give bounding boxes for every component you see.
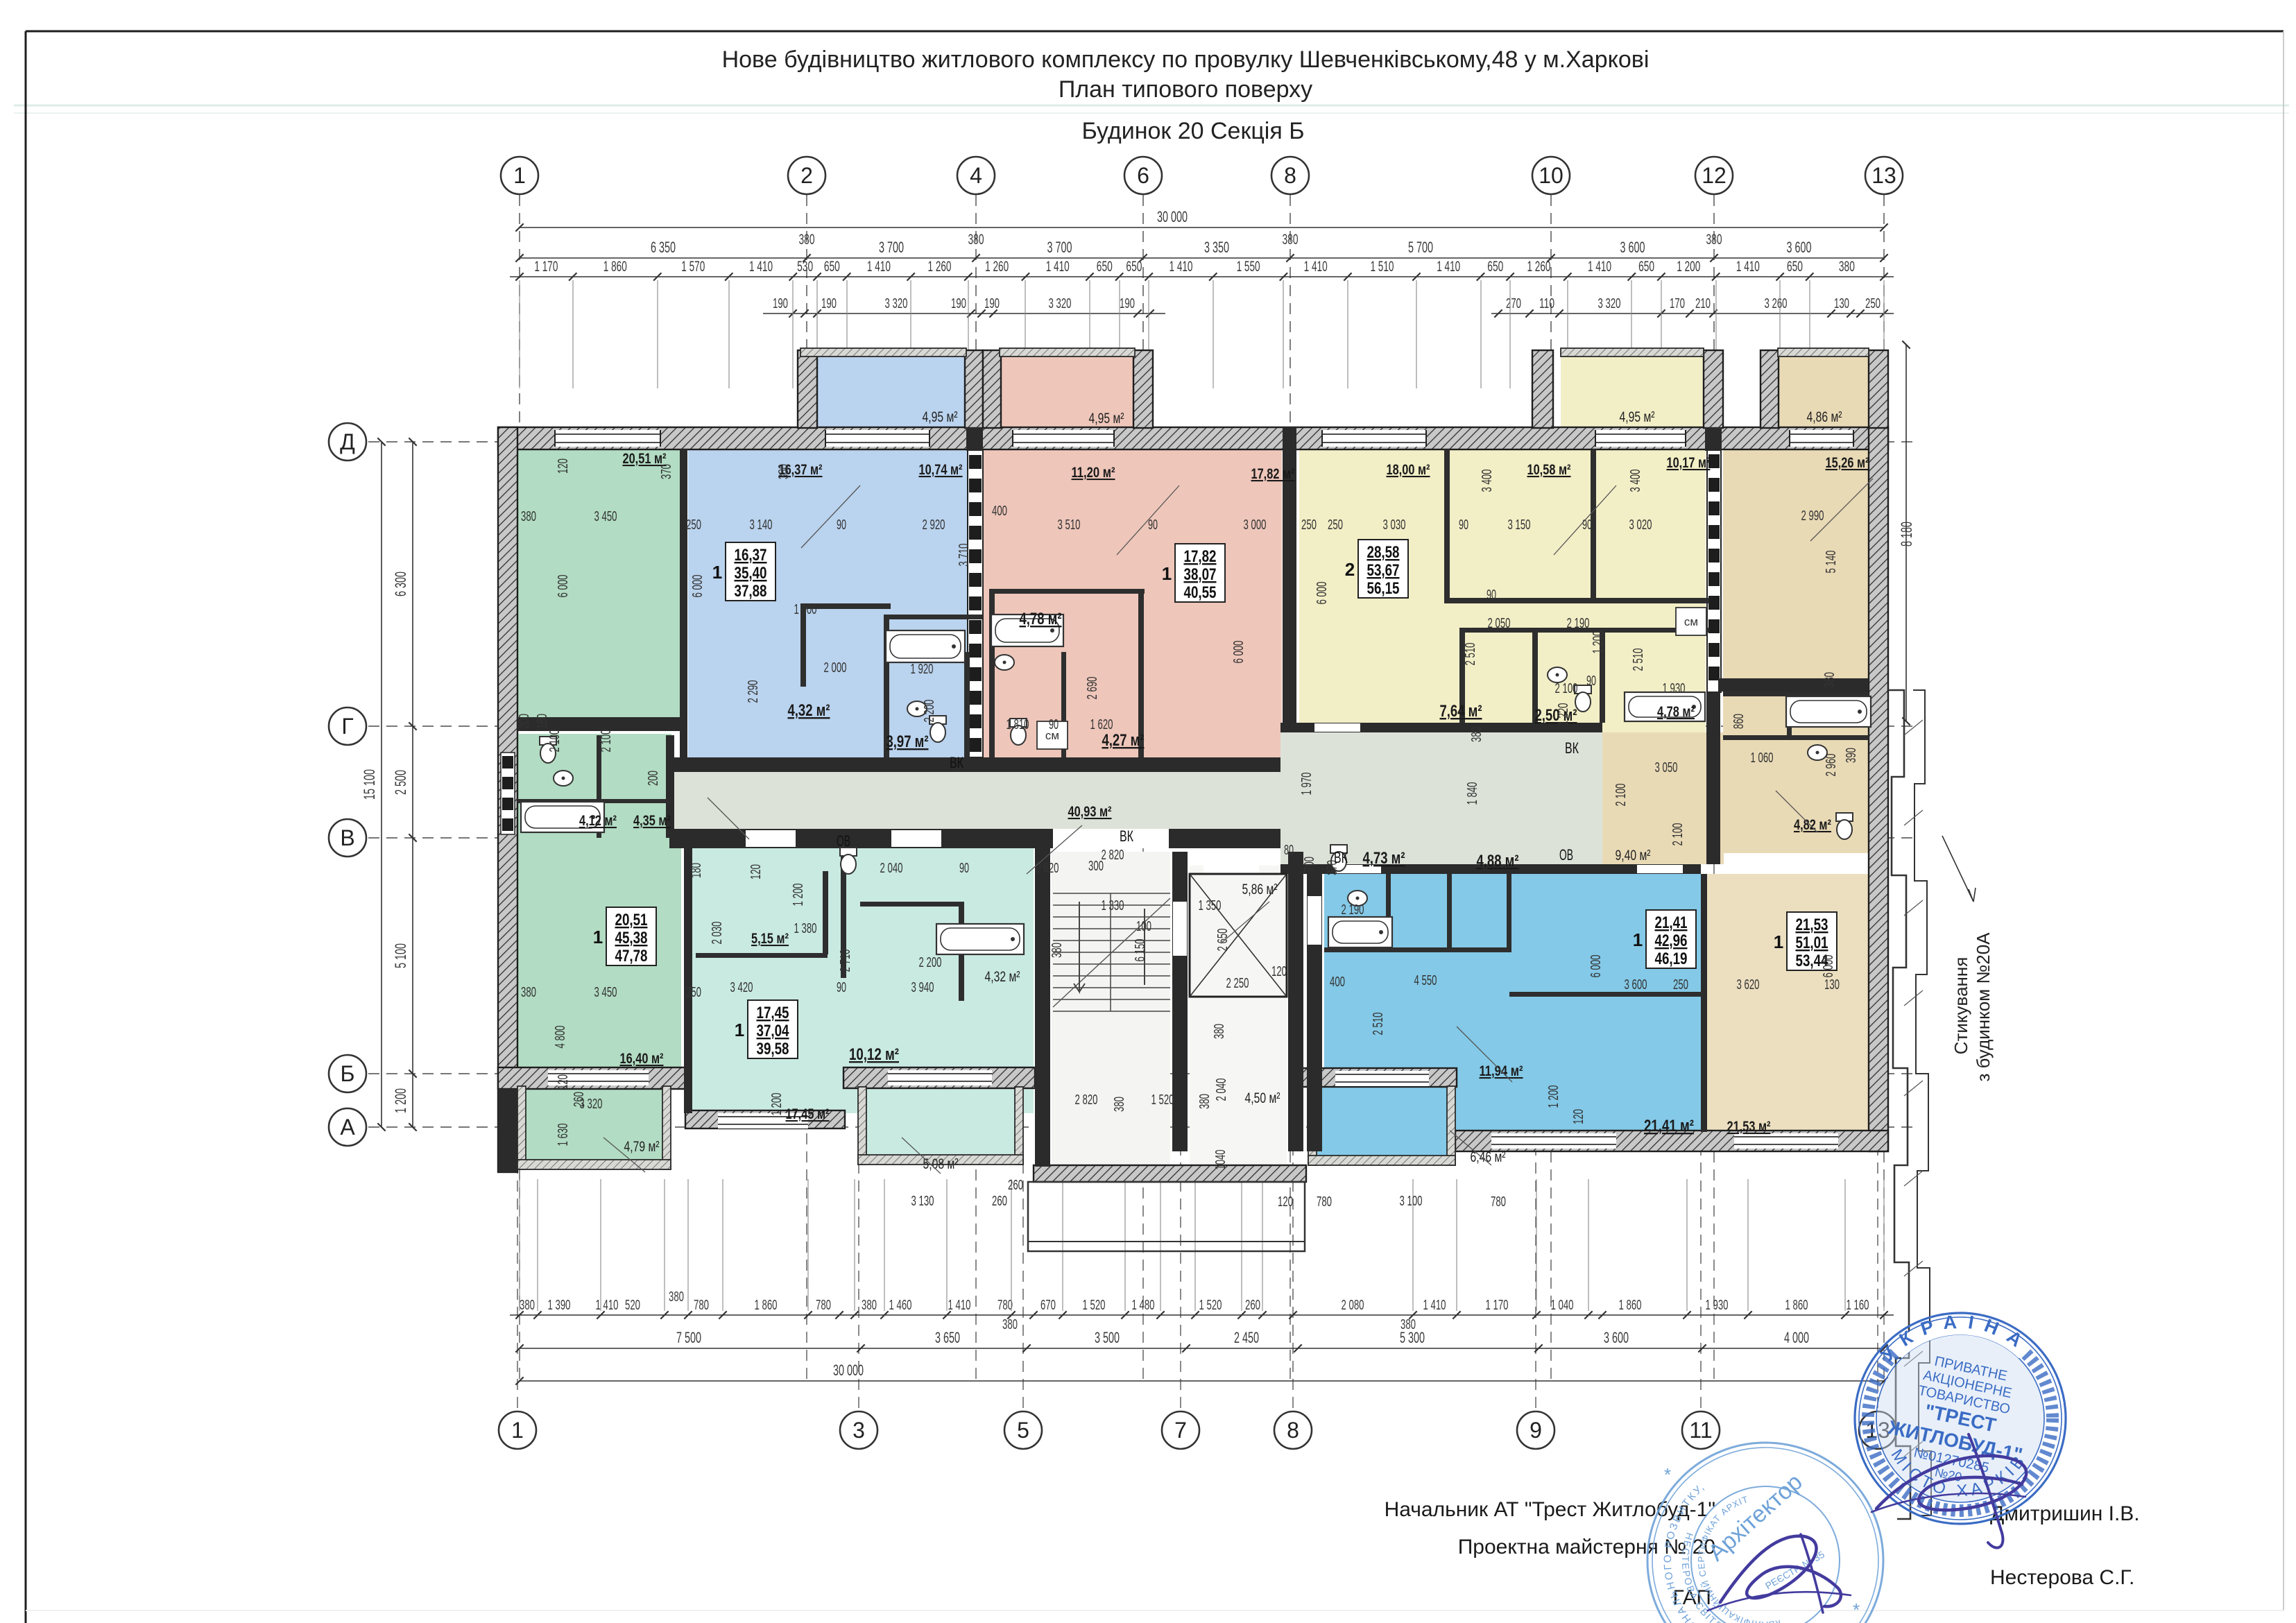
svg-text:650: 650 [1487,259,1503,275]
svg-text:21,41 м²: 21,41 м² [1644,1117,1694,1135]
svg-text:380: 380 [521,509,536,524]
svg-text:120: 120 [1571,1109,1586,1124]
svg-text:3 510: 3 510 [1058,517,1081,533]
svg-text:90: 90 [837,980,846,995]
svg-text:2 080: 2 080 [1342,1298,1364,1313]
svg-text:190: 190 [1120,296,1135,311]
svg-text:3 320: 3 320 [885,296,908,311]
svg-text:110: 110 [1539,296,1554,311]
svg-text:1: 1 [735,1020,744,1040]
svg-text:1 480: 1 480 [1132,1298,1155,1313]
svg-text:1 410: 1 410 [1046,259,1070,275]
svg-text:1 350: 1 350 [1199,898,1222,913]
svg-text:4,50 м²: 4,50 м² [1245,1090,1280,1106]
svg-text:780: 780 [1317,1194,1332,1210]
svg-text:17,45: 17,45 [757,1004,789,1022]
svg-text:380: 380 [669,1289,684,1305]
svg-text:1 520: 1 520 [1151,1092,1174,1108]
svg-text:380: 380 [776,464,791,479]
svg-text:20,51: 20,51 [615,911,648,929]
svg-text:7,64 м²: 7,64 м² [1440,702,1482,721]
svg-text:2 030: 2 030 [710,922,725,945]
svg-text:21,53: 21,53 [1796,916,1828,934]
svg-text:4,86 м²: 4,86 м² [1807,409,1842,425]
svg-text:4,35 м²: 4,35 м² [633,813,671,829]
svg-text:780: 780 [694,1298,709,1313]
svg-text:3 600: 3 600 [1625,977,1647,993]
svg-text:4 800: 4 800 [553,1026,568,1049]
svg-text:380: 380 [1283,232,1299,248]
svg-text:3 100: 3 100 [1400,1194,1423,1209]
svg-text:1 200: 1 200 [1546,1085,1561,1108]
svg-text:16,40 м²: 16,40 м² [620,1051,664,1067]
svg-text:План типового поверху: План типового поверху [1059,76,1312,103]
svg-text:90: 90 [1459,517,1468,533]
svg-text:5,15 м²: 5,15 м² [751,931,789,947]
svg-text:190: 190 [984,296,1000,311]
svg-text:650: 650 [1097,259,1113,275]
svg-text:3 320: 3 320 [1598,296,1621,311]
svg-text:3 710: 3 710 [957,544,972,567]
svg-text:Нове будівництво житлового ком: Нове будівництво житлового комплексу по … [722,46,1650,73]
svg-text:1 840: 1 840 [1465,782,1480,805]
svg-text:4,78 м²: 4,78 м² [1020,610,1062,628]
svg-text:3 400: 3 400 [1480,470,1495,492]
svg-text:380: 380 [1822,672,1837,687]
svg-text:3 620: 3 620 [1737,977,1760,993]
svg-text:2 100: 2 100 [599,730,614,753]
svg-text:1 170: 1 170 [534,259,558,275]
svg-text:3 000: 3 000 [1244,517,1267,533]
svg-text:35,40: 35,40 [735,564,767,583]
svg-text:ВК: ВК [1120,827,1133,845]
svg-text:18,00 м²: 18,00 м² [1387,462,1430,478]
svg-text:51,01: 51,01 [1796,934,1828,952]
svg-text:2 100: 2 100 [1555,681,1578,696]
svg-text:4 550: 4 550 [1414,973,1437,988]
svg-text:4 000: 4 000 [1784,1329,1809,1346]
svg-text:21,53 м²: 21,53 м² [1727,1119,1771,1135]
svg-text:5,08 м²: 5,08 м² [923,1156,959,1172]
svg-text:2 040: 2 040 [880,861,903,876]
svg-text:3 500: 3 500 [1095,1329,1120,1346]
svg-text:210: 210 [1695,296,1711,311]
svg-text:13: 13 [1871,163,1896,188]
svg-text:190: 190 [951,296,966,311]
svg-text:250: 250 [1673,977,1688,993]
svg-text:270: 270 [1506,296,1521,311]
svg-text:1 930: 1 930 [1663,681,1686,696]
svg-text:1 410: 1 410 [1304,259,1328,275]
svg-text:4,78 м²: 4,78 м² [1657,704,1695,720]
svg-text:380: 380 [799,232,815,248]
svg-text:380: 380 [521,985,536,1000]
svg-text:780: 780 [816,1298,831,1313]
svg-text:4: 4 [970,163,982,188]
svg-text:Нестерова С.Г.: Нестерова С.Г. [1990,1566,2134,1589]
svg-text:120: 120 [1271,964,1287,979]
svg-text:15 100: 15 100 [361,769,378,800]
svg-text:1 520: 1 520 [1199,1298,1222,1313]
svg-text:120: 120 [1278,1194,1293,1210]
svg-text:2 050: 2 050 [1488,616,1511,631]
svg-text:260: 260 [992,1194,1007,1209]
svg-text:3 450: 3 450 [594,509,617,524]
svg-text:4,88 м²: 4,88 м² [1477,852,1519,870]
svg-text:260: 260 [1245,1298,1260,1313]
svg-text:3 130: 3 130 [911,1194,934,1209]
svg-text:90: 90 [1049,717,1059,732]
svg-text:ОВ: ОВ [837,832,850,850]
svg-text:6 000: 6 000 [1821,955,1836,978]
svg-text:1 410: 1 410 [1588,259,1611,275]
svg-text:780: 780 [997,1298,1013,1313]
svg-text:Б: Б [341,1061,355,1086]
svg-text:4,82 м²: 4,82 м² [1794,817,1831,833]
svg-text:3 260: 3 260 [1765,296,1788,311]
svg-text:5 700: 5 700 [1408,239,1433,256]
svg-text:Будинок 20 Секція Б: Будинок 20 Секція Б [1081,118,1304,144]
svg-text:170: 170 [1670,296,1685,311]
svg-text:2 200: 2 200 [919,955,942,970]
svg-text:260: 260 [1008,1178,1023,1193]
svg-text:2 190: 2 190 [1567,616,1590,631]
svg-text:Г: Г [341,714,353,739]
svg-text:47,78: 47,78 [615,947,648,965]
svg-text:21,41: 21,41 [1655,913,1688,932]
svg-text:380: 380 [1212,1024,1227,1039]
svg-text:250: 250 [1865,296,1881,311]
svg-text:670: 670 [1040,1298,1056,1313]
svg-text:1 860: 1 860 [1785,1298,1808,1313]
svg-text:2 100: 2 100 [1670,823,1686,846]
svg-text:380: 380 [1002,1317,1018,1332]
svg-text:А: А [340,1115,355,1140]
svg-text:1: 1 [1633,929,1643,950]
svg-text:260: 260 [572,1092,587,1107]
svg-text:3 600: 3 600 [1620,239,1645,256]
svg-text:17,82: 17,82 [1184,547,1217,566]
svg-text:180: 180 [689,863,704,878]
svg-text:10,17 м²: 10,17 м² [1667,455,1711,471]
svg-text:3 600: 3 600 [1787,239,1812,256]
svg-text:3 450: 3 450 [594,985,617,1000]
svg-text:8: 8 [1287,1418,1299,1443]
svg-text:380: 380 [1112,1097,1127,1112]
svg-text:3 400: 3 400 [1628,470,1643,492]
svg-text:2 290: 2 290 [746,680,761,703]
svg-text:1 170: 1 170 [1486,1298,1509,1313]
svg-text:8: 8 [1284,163,1296,188]
svg-text:200: 200 [517,714,532,729]
svg-text:200: 200 [646,771,661,786]
svg-text:1 410: 1 410 [749,259,773,275]
svg-text:1 200: 1 200 [769,1093,785,1116]
svg-text:3 050: 3 050 [1655,760,1678,775]
svg-text:250: 250 [1328,517,1343,533]
svg-text:130: 130 [1834,296,1849,311]
svg-text:2 250: 2 250 [1226,976,1249,991]
svg-text:2 710: 2 710 [838,950,853,972]
svg-text:1: 1 [1774,931,1783,952]
svg-text:380: 380 [862,1298,877,1313]
svg-text:1 520: 1 520 [1083,1298,1106,1313]
svg-text:56,15: 56,15 [1367,579,1400,598]
svg-text:380: 380 [1050,943,1065,958]
svg-text:з будинком №20А: з будинком №20А [1973,932,1994,1082]
svg-text:1 200: 1 200 [791,884,806,907]
svg-text:8 180: 8 180 [1898,522,1915,547]
svg-text:11,20 м²: 11,20 м² [1072,465,1115,481]
svg-text:1 930: 1 930 [1706,1298,1729,1313]
svg-text:1 550: 1 550 [1237,259,1260,275]
svg-text:5 140: 5 140 [1824,551,1839,574]
svg-text:3,97 м²: 3,97 м² [886,732,929,751]
svg-text:400: 400 [1330,974,1345,990]
svg-text:120: 120 [556,1074,571,1090]
svg-text:90: 90 [959,861,969,876]
svg-text:2 820: 2 820 [1102,848,1124,863]
svg-text:2 510: 2 510 [1631,649,1646,671]
svg-text:ВК: ВК [1565,739,1579,757]
svg-text:1: 1 [511,1418,524,1443]
svg-text:53,67: 53,67 [1367,561,1400,580]
svg-text:Проектна майстерня № 20: Проектна майстерня № 20 [1458,1536,1715,1558]
svg-text:520: 520 [625,1298,640,1313]
svg-text:10: 10 [1539,163,1563,188]
svg-text:17,45 м²: 17,45 м² [786,1106,830,1122]
svg-text:6 350: 6 350 [651,239,676,256]
svg-text:см: см [1684,615,1698,628]
svg-text:3 650: 3 650 [935,1329,960,1346]
svg-text:3 700: 3 700 [879,239,904,256]
svg-text:120: 120 [556,458,571,474]
svg-text:40,55: 40,55 [1184,583,1217,602]
svg-text:6 300: 6 300 [392,572,409,596]
svg-text:6 000: 6 000 [1231,641,1246,664]
svg-text:380: 380 [1706,232,1722,248]
svg-text:*: * [1664,1464,1671,1485]
svg-text:1 920: 1 920 [911,662,934,677]
svg-text:37,04: 37,04 [757,1022,790,1040]
svg-text:120: 120 [748,864,764,879]
svg-text:4,79 м²: 4,79 м² [624,1139,660,1155]
svg-text:3 020: 3 020 [1629,517,1652,533]
svg-text:10,58 м²: 10,58 м² [1527,462,1571,478]
svg-text:1 260: 1 260 [985,259,1009,275]
svg-text:650: 650 [1638,259,1654,275]
svg-text:80: 80 [1284,843,1294,858]
svg-text:2 920: 2 920 [923,517,945,533]
svg-text:1 410: 1 410 [596,1298,619,1313]
svg-text:6 000: 6 000 [556,575,571,598]
svg-text:860: 860 [1731,714,1747,729]
svg-text:700: 700 [1302,857,1317,872]
svg-text:10,12 м²: 10,12 м² [849,1045,899,1064]
svg-text:5 100: 5 100 [392,943,409,968]
svg-text:1 570: 1 570 [681,259,705,275]
svg-text:1 060: 1 060 [1751,750,1774,766]
svg-text:2 040: 2 040 [1214,1079,1229,1101]
svg-text:9: 9 [1530,1418,1542,1443]
svg-text:4,32 м²: 4,32 м² [985,969,1020,985]
svg-text:2 690: 2 690 [1085,677,1100,700]
svg-text:390: 390 [1844,748,1859,763]
svg-text:1: 1 [513,163,526,188]
svg-text:100: 100 [1136,919,1151,934]
svg-text:4,73 м²: 4,73 м² [1363,849,1405,868]
svg-text:Стикування: Стикування [1951,957,1971,1055]
svg-text:4,12 м²: 4,12 м² [579,813,617,829]
svg-text:4,27 м²: 4,27 м² [1102,731,1145,750]
svg-text:6: 6 [1137,163,1149,188]
svg-text:1 410: 1 410 [1437,259,1460,275]
svg-text:380: 380 [968,232,984,248]
svg-text:1 620: 1 620 [1090,717,1113,732]
svg-text:1 380: 1 380 [794,921,817,936]
svg-text:2: 2 [1345,559,1355,580]
svg-text:190: 190 [773,296,788,311]
svg-text:7 500: 7 500 [676,1329,701,1346]
svg-text:370: 370 [659,464,674,479]
svg-text:90: 90 [1586,673,1596,689]
svg-text:1 040: 1 040 [1551,1298,1574,1313]
svg-text:380: 380 [520,1298,535,1313]
svg-text:1040: 1040 [1213,1150,1228,1170]
svg-text:780: 780 [1491,1194,1506,1210]
svg-text:3 150: 3 150 [1508,517,1531,533]
svg-text:45,38: 45,38 [615,929,648,947]
svg-text:2 960: 2 960 [1824,754,1839,777]
svg-text:1 510: 1 510 [1370,259,1394,275]
svg-text:1 410: 1 410 [948,1298,971,1313]
svg-text:1 860: 1 860 [1619,1298,1642,1313]
svg-text:2 510: 2 510 [1463,643,1478,666]
svg-text:650: 650 [1787,259,1803,275]
svg-text:2 100: 2 100 [1613,784,1629,807]
svg-text:Начальник АТ "Трест Житлобуд-1: Начальник АТ "Трест Житлобуд-1" [1385,1498,1715,1521]
svg-text:90: 90 [1582,517,1592,533]
svg-text:2 100: 2 100 [547,730,563,753]
svg-text:28,58: 28,58 [1367,543,1400,562]
svg-text:180: 180 [535,714,550,729]
svg-text:6 150: 6 150 [1133,939,1148,962]
svg-text:2 650: 2 650 [1215,929,1231,952]
svg-text:ВК: ВК [950,754,963,771]
svg-text:1 260: 1 260 [1527,259,1550,275]
svg-text:650: 650 [1126,259,1142,275]
svg-text:1 410: 1 410 [867,259,891,275]
svg-text:2 200: 2 200 [922,700,937,723]
svg-text:3 420: 3 420 [730,980,753,995]
svg-text:4,95 м²: 4,95 м² [1089,411,1124,427]
svg-text:380: 380 [1839,259,1855,275]
svg-text:17,82 м²: 17,82 м² [1251,466,1295,482]
svg-text:12: 12 [1702,163,1727,188]
svg-text:1 410: 1 410 [1423,1298,1446,1313]
svg-text:11: 11 [1689,1418,1712,1443]
svg-text:4,32 м²: 4,32 м² [788,701,830,720]
svg-text:650: 650 [824,259,840,275]
svg-text:15,26 м²: 15,26 м² [1826,455,1869,471]
svg-text:1 330: 1 330 [1102,898,1124,913]
svg-text:37,88: 37,88 [735,582,767,601]
svg-text:1 860: 1 860 [755,1298,778,1313]
svg-text:4,95 м²: 4,95 м² [1620,409,1655,425]
svg-text:2 000: 2 000 [824,660,847,676]
svg-text:5 300: 5 300 [1400,1329,1425,1346]
svg-text:1 200: 1 200 [1591,631,1606,654]
svg-text:3 320: 3 320 [1049,296,1072,311]
svg-text:30 000: 30 000 [1157,208,1188,225]
svg-text:1 200: 1 200 [392,1088,409,1113]
svg-text:1 460: 1 460 [889,1298,912,1313]
svg-text:1 200: 1 200 [1677,259,1700,275]
svg-text:90: 90 [1487,587,1496,603]
svg-text:1: 1 [712,562,722,583]
svg-text:6 000: 6 000 [1314,582,1330,605]
svg-text:1 260: 1 260 [927,259,951,275]
svg-text:2 450: 2 450 [1234,1329,1259,1346]
svg-text:1 410: 1 410 [1736,259,1760,275]
svg-text:2 500: 2 500 [392,770,409,795]
svg-text:130: 130 [1824,977,1840,993]
svg-text:250: 250 [1301,517,1317,533]
svg-text:250: 250 [686,985,701,1000]
svg-text:190: 190 [821,296,837,311]
svg-text:39,58: 39,58 [757,1040,789,1058]
svg-text:400: 400 [992,504,1007,519]
svg-text:2 820: 2 820 [1075,1092,1098,1108]
svg-text:ОВ: ОВ [1559,846,1573,864]
svg-text:ВК: ВК [1334,849,1348,866]
svg-text:4,95 м²: 4,95 м² [923,409,958,425]
svg-text:30 000: 30 000 [833,1362,864,1379]
svg-text:1 220: 1 220 [1556,703,1571,726]
svg-text:2 190: 2 190 [1342,902,1364,918]
svg-text:6 000: 6 000 [1588,955,1604,978]
svg-text:530: 530 [797,259,813,275]
svg-text:3 700: 3 700 [1047,239,1072,256]
svg-text:380: 380 [1469,727,1484,742]
svg-text:1 630: 1 630 [556,1124,571,1147]
svg-text:2 990: 2 990 [1801,508,1824,524]
svg-text:1 860: 1 860 [603,259,627,275]
svg-text:7: 7 [1174,1418,1187,1443]
svg-text:5,86 м²: 5,86 м² [1242,882,1278,898]
svg-text:40,93 м²: 40,93 м² [1068,804,1112,820]
svg-text:3 600: 3 600 [1604,1329,1629,1346]
svg-text:42,96: 42,96 [1655,931,1688,950]
svg-text:380: 380 [1197,1094,1213,1109]
svg-text:В: В [340,825,354,850]
svg-text:1 000: 1 000 [794,602,817,617]
svg-text:3 030: 3 030 [1383,517,1406,533]
svg-text:3 140: 3 140 [750,517,773,533]
svg-text:Д: Д [340,429,355,454]
svg-text:38,07: 38,07 [1184,565,1217,584]
svg-text:16,37: 16,37 [735,546,767,565]
svg-text:3 940: 3 940 [911,980,934,995]
svg-text:9,40 м²: 9,40 м² [1616,848,1651,864]
svg-text:90: 90 [1148,517,1158,533]
svg-text:1: 1 [1162,563,1172,584]
svg-text:90: 90 [837,517,846,533]
svg-text:1 810: 1 810 [1006,717,1029,732]
svg-text:1 390: 1 390 [548,1298,571,1313]
svg-text:2: 2 [800,163,813,188]
svg-text:250: 250 [686,517,701,533]
